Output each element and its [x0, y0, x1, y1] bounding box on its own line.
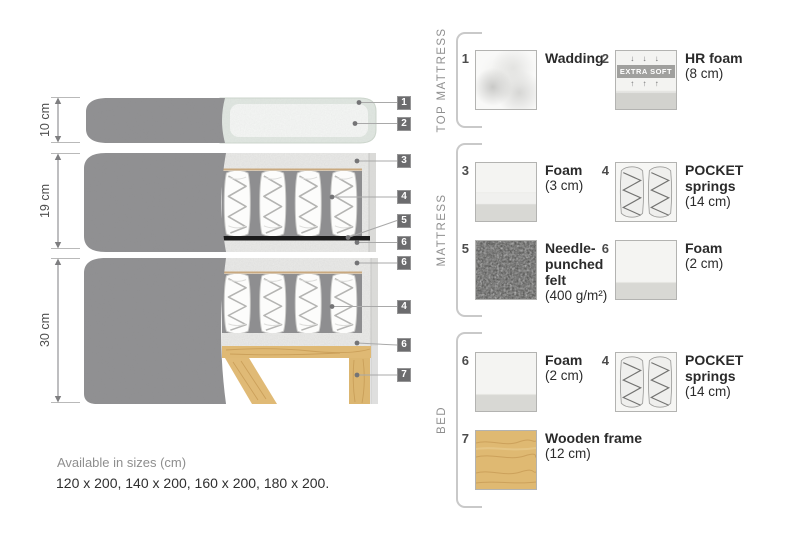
top-mattress-section — [84, 96, 380, 145]
legend-item-pocket-springs: 4 POCKET springs (14 cm) — [591, 162, 743, 222]
wood-swatch — [475, 430, 537, 490]
legend-item-wadding: 1 Wadding — [451, 50, 604, 110]
wooden-frame — [222, 346, 371, 404]
legend-item-name: Foam — [545, 162, 583, 178]
legend-item-foam-2cm: 6 Foam (2 cm) — [591, 240, 723, 300]
pocket-springs-swatch — [615, 162, 677, 222]
callout-badge: 5 — [397, 214, 411, 228]
dimension-lines — [51, 98, 80, 403]
legend-item-sub: (12 cm) — [545, 446, 642, 462]
callout-badge: 6 — [397, 338, 411, 352]
pocket-springs-swatch — [615, 352, 677, 412]
foam-swatch — [615, 240, 677, 300]
legend-item-sub: (14 cm) — [685, 194, 743, 210]
legend-item-sub: (3 cm) — [545, 178, 583, 194]
section-label-bed: BED — [434, 355, 450, 485]
legend-item-name: Foam — [545, 352, 583, 368]
legend-item-number: 6 — [591, 240, 609, 256]
sizes-title: Available in sizes (cm) — [57, 455, 186, 470]
dimension-label-bed: 30 cm — [37, 300, 53, 360]
legend-item-wooden-frame: 7 Wooden frame (12 cm) — [451, 430, 642, 490]
callout-badge: 4 — [397, 300, 411, 314]
arrows-up-icon: ↑ ↑ ↑ — [630, 79, 661, 89]
callout-badge: 2 — [397, 117, 411, 131]
legend-item-sub: (14 cm) — [685, 384, 743, 400]
mattress-section — [82, 151, 376, 254]
dimension-label-mattress: 19 cm — [37, 171, 53, 231]
legend-item-number: 1 — [451, 50, 469, 66]
bed-base-section — [82, 256, 378, 406]
legend-item-foam-2cm: 6 Foam (2 cm) — [451, 352, 583, 412]
needle-felt-swatch — [475, 240, 537, 300]
legend-item-number: 6 — [451, 352, 469, 368]
pocket-fabric-top-line — [222, 169, 362, 171]
callout-badge: 6 — [397, 256, 411, 270]
callout-badge: 6 — [397, 236, 411, 250]
legend-item-name: Foam — [685, 240, 723, 256]
legend-item-pocket-springs: 4 POCKET springs (14 cm) — [591, 352, 743, 412]
legend-item-sub: (2 cm) — [685, 256, 723, 272]
legend-item-number: 7 — [451, 430, 469, 446]
legend-item-sub: (2 cm) — [545, 368, 583, 384]
legend-item-sub: (8 cm) — [685, 66, 743, 82]
extra-soft-badge: EXTRA SOFT — [617, 65, 675, 78]
legend-item-needle-felt: 5 Needle- punched felt (400 g/m²) — [451, 240, 607, 304]
callout-badge: 7 — [397, 368, 411, 382]
arrows-down-icon: ↓ ↓ ↓ — [630, 54, 661, 64]
callout-badge: 1 — [397, 96, 411, 110]
dimension-label-top-mattress: 10 cm — [37, 90, 53, 150]
legend-item-name: POCKET springs — [685, 352, 743, 384]
legend-item-name: Wooden frame — [545, 430, 642, 446]
legend-item-number: 2 — [591, 50, 609, 66]
callout-badge: 4 — [397, 190, 411, 204]
foam-swatch — [475, 162, 537, 222]
hr-foam-swatch: ↓ ↓ ↓ EXTRA SOFT ↑ ↑ ↑ — [615, 50, 677, 110]
mattress-construction-infographic: 10 cm 19 cm 30 cm 1 2 3 4 5 6 6 4 6 7 TO… — [0, 0, 800, 533]
sizes-list: 120 x 200, 140 x 200, 160 x 200, 180 x 2… — [56, 475, 329, 491]
legend-item-foam-3cm: 3 Foam (3 cm) — [451, 162, 583, 222]
legend-item-number: 4 — [591, 162, 609, 178]
section-label-top-mattress: TOP MATTRESS — [434, 15, 450, 145]
wadding-swatch — [475, 50, 537, 110]
legend-item-number: 3 — [451, 162, 469, 178]
foam-swatch — [475, 352, 537, 412]
legend-item-name: POCKET springs — [685, 162, 743, 194]
legend-item-hr-foam: 2 ↓ ↓ ↓ EXTRA SOFT ↑ ↑ ↑ HR foam (8 cm) — [591, 50, 743, 110]
callout-badge: 3 — [397, 154, 411, 168]
legend-item-number: 4 — [591, 352, 609, 368]
legend-item-name: HR foam — [685, 50, 743, 66]
section-label-mattress: MATTRESS — [434, 165, 450, 295]
bed-cross-section-diagram — [0, 0, 430, 533]
legend-item-number: 5 — [451, 240, 469, 256]
